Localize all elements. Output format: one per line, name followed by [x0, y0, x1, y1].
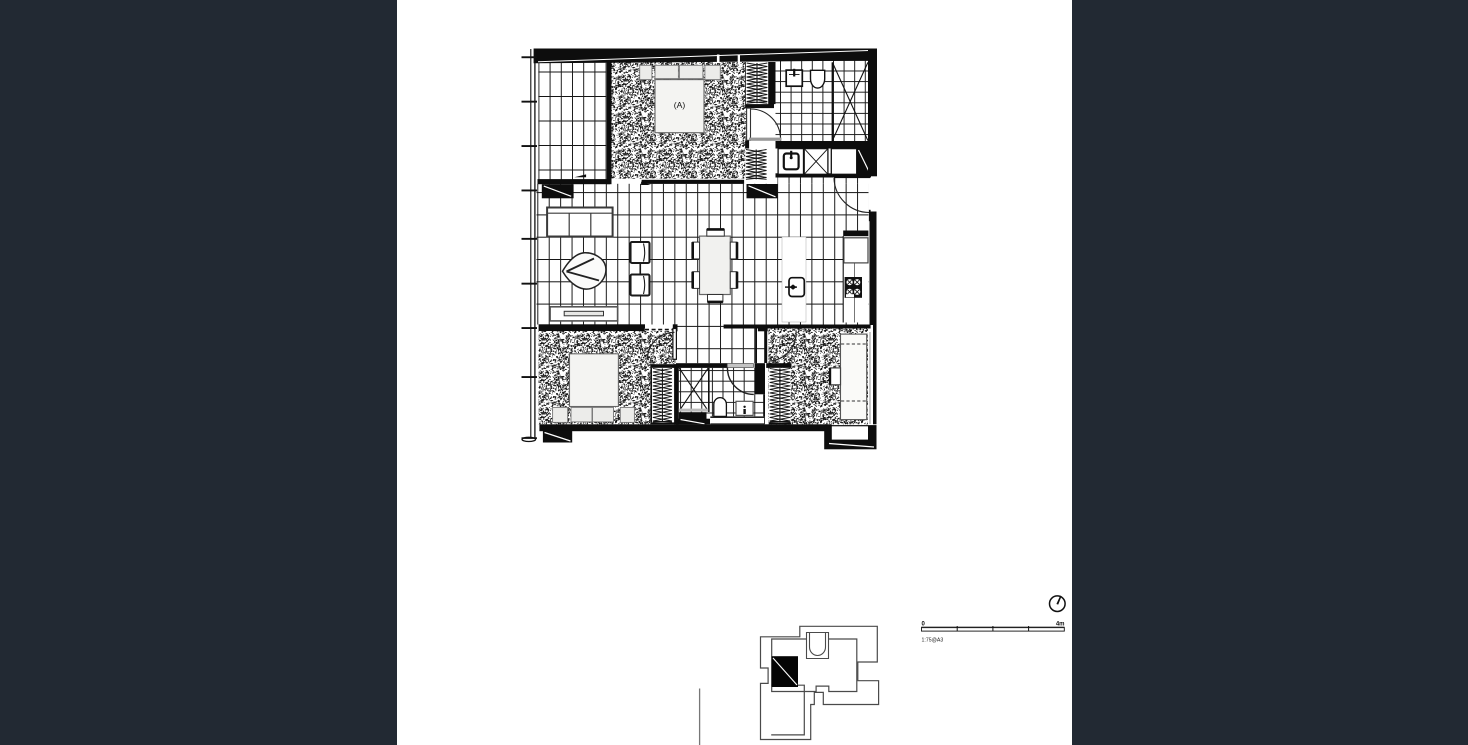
svg-text:1:75@A3: 1:75@A3	[922, 638, 944, 644]
svg-text:0: 0	[922, 622, 926, 628]
svg-text:(A): (A)	[674, 100, 686, 110]
svg-text:4m: 4m	[1056, 622, 1065, 628]
